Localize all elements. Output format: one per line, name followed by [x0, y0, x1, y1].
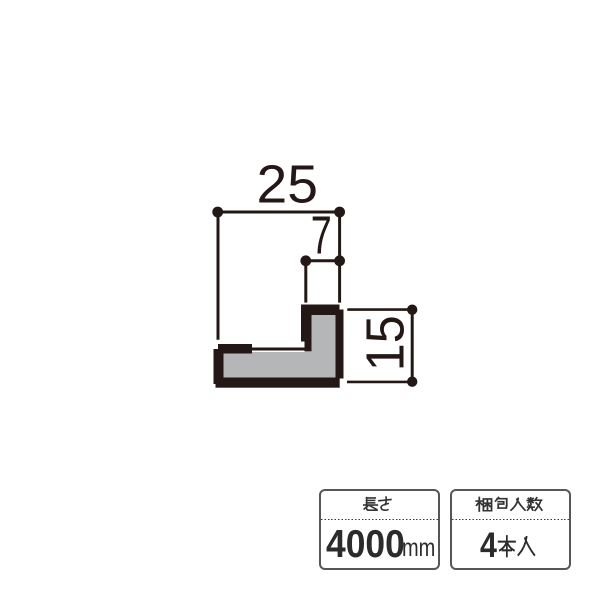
svg-text:7: 7	[311, 206, 332, 266]
svg-text:15: 15	[356, 315, 416, 371]
svg-text:25: 25	[257, 155, 319, 215]
